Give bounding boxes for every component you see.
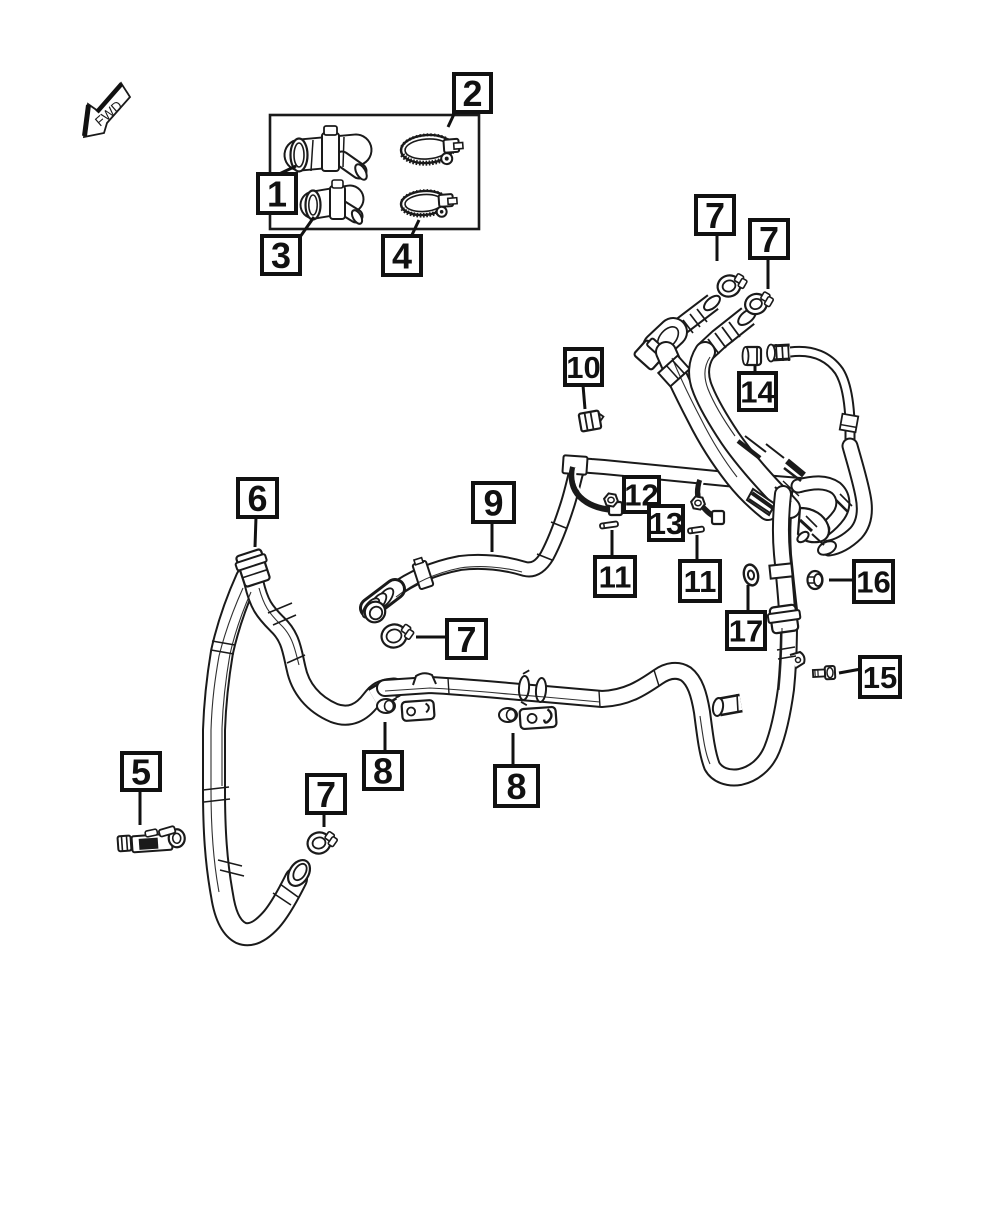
svg-text:5: 5 xyxy=(131,751,151,792)
svg-text:3: 3 xyxy=(271,235,291,276)
svg-text:17: 17 xyxy=(729,614,763,649)
svg-text:15: 15 xyxy=(863,660,897,695)
svg-text:16: 16 xyxy=(856,565,890,600)
svg-text:11: 11 xyxy=(684,564,717,599)
svg-text:2: 2 xyxy=(462,73,482,114)
svg-text:7: 7 xyxy=(316,774,336,815)
svg-text:14: 14 xyxy=(740,375,775,410)
svg-text:1: 1 xyxy=(267,173,287,214)
svg-text:8: 8 xyxy=(506,766,526,807)
svg-text:6: 6 xyxy=(247,478,267,519)
svg-text:10: 10 xyxy=(566,350,600,385)
svg-text:7: 7 xyxy=(759,219,779,260)
svg-text:13: 13 xyxy=(649,506,683,541)
svg-text:7: 7 xyxy=(456,619,476,660)
svg-text:8: 8 xyxy=(373,750,393,791)
svg-text:4: 4 xyxy=(392,235,412,276)
svg-text:9: 9 xyxy=(483,482,503,523)
svg-text:7: 7 xyxy=(705,195,725,236)
svg-text:11: 11 xyxy=(599,560,632,595)
